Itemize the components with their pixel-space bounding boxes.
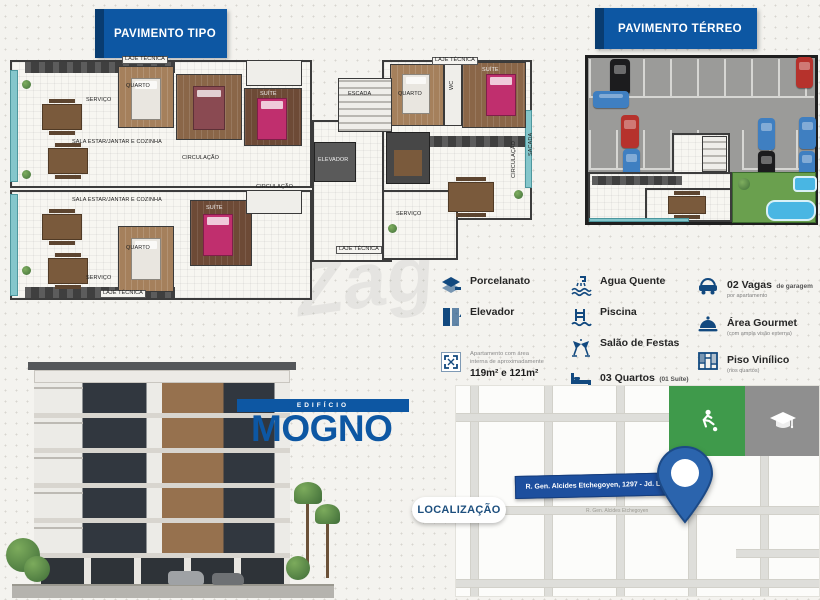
party-icon	[570, 337, 592, 359]
amenity-label: 03 Quartos	[600, 372, 655, 384]
palm-tree	[315, 504, 340, 524]
car	[593, 91, 629, 108]
bed	[203, 214, 233, 256]
label-escada: ESCADA	[348, 92, 371, 98]
label-quarto: QUARTO	[126, 84, 150, 90]
building-roof	[28, 362, 296, 370]
graduation-cap-icon	[769, 409, 797, 433]
real-estate-poster: Zag PAVIMENTO TIPO PAVIMENTO TÉRREO	[0, 0, 820, 600]
amenity-label: 02 Vagas	[727, 279, 772, 291]
tree	[286, 556, 310, 580]
amenity-label: Porcelanato	[470, 275, 530, 287]
pool	[766, 200, 816, 221]
building-floor	[34, 488, 290, 523]
label-servico: SERVIÇO	[86, 276, 111, 282]
location-pin-icon	[656, 446, 714, 524]
plant	[388, 224, 397, 233]
label-sacada: SACADA	[529, 133, 535, 156]
amenity-agua-quente: Agua Quente	[570, 275, 698, 297]
amenity-gourmet: Área Gourmet (com ampla visão externa)	[697, 313, 817, 338]
amenity-sub: (nos quartos)	[727, 368, 789, 375]
car	[799, 117, 816, 149]
label-suite: SUÍTE	[482, 68, 499, 74]
rug	[394, 150, 422, 176]
amenity-sub: (01 Suíte)	[659, 376, 688, 383]
label-servico: SERVIÇO	[396, 212, 421, 218]
stairwell	[338, 78, 392, 132]
amenities-col-2: Agua Quente Piscina Salão de Festas	[570, 275, 698, 399]
elevator-icon	[440, 306, 462, 328]
localizacao-label: LOCALIZAÇÃO	[417, 504, 500, 516]
amenity-label-group: 03 Quartos (01 Suíte)	[600, 368, 689, 386]
label-sala: SALA ESTAR/JANTAR E COZINHA	[72, 140, 162, 146]
label-laje-tecnica: LAJE TÉCNICA	[100, 290, 146, 298]
car	[610, 59, 630, 95]
amenity-elevador: Elevador	[440, 306, 572, 328]
expand-icon	[440, 351, 462, 373]
bathroom-wc	[444, 62, 462, 126]
pavement	[12, 584, 334, 598]
amenities-col-3: 02 Vagas de garagem por apartamento Área…	[697, 275, 817, 384]
bed	[193, 86, 225, 130]
map-block-school	[745, 386, 820, 456]
map-street-name: R. Gen. Alcides Etchegoyen	[586, 508, 648, 514]
amenity-label: Agua Quente	[600, 275, 665, 287]
dining-table	[42, 214, 82, 240]
label-laje-tecnica: LAJE TÉCNICA	[432, 57, 478, 65]
balcony-glass	[10, 70, 18, 182]
car	[758, 118, 775, 150]
map-street	[456, 579, 820, 588]
dining-table	[48, 148, 88, 174]
amenity-piscina: Piscina	[570, 306, 698, 328]
dining-table	[48, 258, 88, 284]
garage-stairs	[702, 136, 727, 172]
tree	[24, 556, 50, 582]
header-pavimento-terreo: PAVIMENTO TÉRREO	[595, 8, 757, 49]
label-servico: SERVIÇO	[86, 98, 111, 104]
bed	[486, 74, 516, 116]
amenity-label: Área Gourmet	[727, 317, 797, 329]
note-line-1: Apartamento com área	[470, 351, 544, 359]
label-circulacao: CIRCULAÇÃO	[256, 185, 293, 191]
label-laje-tecnica: LAJE TÉCNICA	[336, 246, 382, 254]
plant	[514, 190, 523, 199]
balcony-glass	[10, 194, 18, 296]
building-parapet	[34, 370, 290, 383]
amenity-label: Salão de Festas	[600, 337, 679, 349]
building-ground-floor	[34, 558, 290, 584]
label-sala: SALA ESTAR/JANTAR E COZINHA	[72, 198, 162, 204]
label-suite: SUÍTE	[260, 92, 277, 98]
label-wc: WC	[450, 81, 456, 90]
pool-ladder-icon	[570, 306, 592, 328]
plant	[22, 170, 31, 179]
amenity-sub: por apartamento	[727, 293, 813, 300]
car-icon	[697, 275, 719, 297]
cloche-icon	[697, 313, 719, 335]
amenity-label-group: 02 Vagas de garagem por apartamento	[727, 275, 813, 300]
gourmet-table	[668, 196, 706, 214]
amenity-porcelanato: Porcelanato	[440, 275, 572, 297]
palm-tree	[294, 482, 322, 504]
car	[621, 115, 639, 148]
map-street	[736, 549, 820, 558]
bathroom	[246, 190, 302, 214]
label-quarto: QUARTO	[126, 246, 150, 252]
gourmet-counter	[592, 176, 682, 185]
label-elevador: ELEVADOR	[318, 158, 348, 164]
label-laje-tecnica: LAJE TÉCNICA	[122, 56, 168, 64]
street-car	[212, 573, 244, 585]
amenity-label: Piso Vinílico	[727, 354, 789, 366]
amenity-sub-inline: de garagem	[776, 283, 813, 290]
header-terreo-label: PAVIMENTO TÉRREO	[610, 23, 742, 35]
building-floor	[34, 523, 290, 558]
header-pavimento-tipo: PAVIMENTO TIPO	[95, 9, 227, 58]
palm-trunk	[326, 520, 329, 578]
logo-name: MOGNO	[251, 410, 392, 447]
amenity-label-group: Área Gourmet (com ampla visão externa)	[727, 313, 797, 338]
location-map: R. Gen. Alcides Etchegoyen R. Gen. Alcid…	[455, 385, 820, 597]
spa	[793, 176, 817, 192]
bathroom	[246, 60, 302, 86]
amenity-area: Apartamento com área interna de aproxima…	[440, 351, 572, 379]
dining-table	[42, 104, 82, 130]
amenity-salao-festas: Salão de Festas	[570, 337, 698, 359]
label-circulacao: CIRCULAÇÃO	[182, 156, 219, 162]
label-suite: SUÍTE	[206, 206, 223, 212]
amenity-label-group: Piso Vinílico (nos quartos)	[727, 350, 789, 375]
amenity-sub: (com ampla visão externa)	[727, 331, 797, 338]
label-quarto: QUARTO	[398, 92, 422, 98]
hot-water-icon	[570, 275, 592, 297]
amenity-label: Elevador	[470, 306, 514, 318]
amenity-vagas: 02 Vagas de garagem por apartamento	[697, 275, 817, 300]
street-car	[168, 571, 204, 585]
header-tipo-label: PAVIMENTO TIPO	[106, 28, 216, 40]
note-line-2: interna de aproximadamente	[470, 359, 544, 367]
area-value: 119m² e 121m²	[470, 368, 544, 379]
dining-table	[448, 182, 494, 212]
plant	[22, 80, 31, 89]
bed	[257, 98, 287, 140]
amenities-col-1: Porcelanato Elevador Apartamento com áre…	[440, 275, 572, 388]
plant	[738, 178, 750, 190]
amenity-label: Piscina	[600, 306, 637, 318]
label-circulacao: CIRCULAÇÃO	[512, 141, 518, 178]
amenity-note: Apartamento com área interna de aproxima…	[470, 351, 544, 379]
plank-icon	[697, 350, 719, 372]
building-floor	[34, 453, 290, 488]
plant	[22, 266, 31, 275]
car	[796, 57, 813, 88]
localizacao-pill: LOCALIZAÇÃO	[412, 497, 506, 523]
tiles-icon	[440, 275, 462, 297]
gourmet-glass	[589, 218, 689, 222]
amenity-piso: Piso Vinílico (nos quartos)	[697, 350, 817, 375]
soccer-player-icon	[694, 408, 720, 434]
